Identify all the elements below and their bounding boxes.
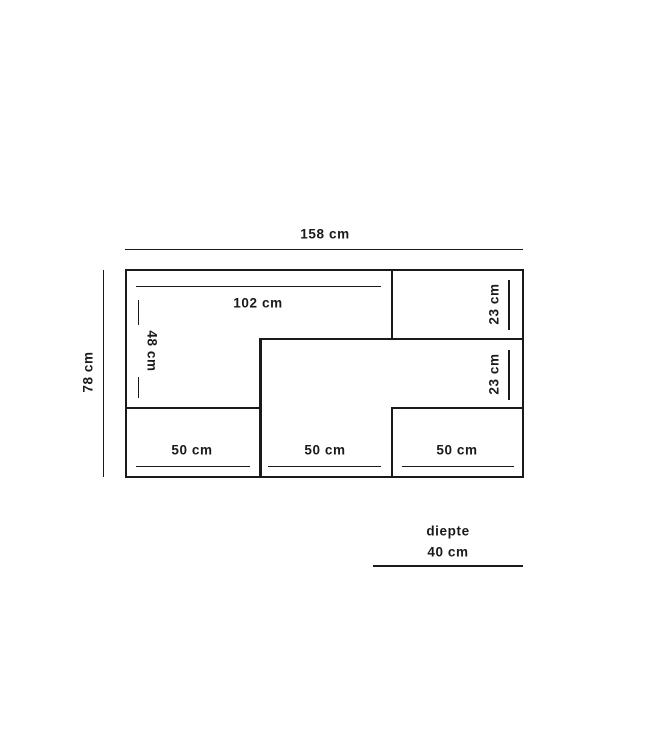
- height-48-label: 48 cm: [145, 330, 160, 371]
- overall-width-label: 158 cm: [300, 227, 349, 242]
- partition-bottom-left-horizontal: [125, 407, 261, 410]
- shelf-102-dim-line: [136, 286, 381, 288]
- middle-right-23-dim-line: [508, 350, 510, 400]
- overall-width-dim-line: [125, 249, 523, 251]
- height-48-dim-line-bottom: [138, 377, 140, 398]
- middle-right-23-label: 23 cm: [487, 353, 502, 394]
- bottom-middle-50-dim-line: [268, 466, 381, 468]
- partition-bottom-right-vertical: [391, 407, 394, 479]
- overall-height-dim-line: [103, 270, 105, 477]
- depth-value: 40 cm: [427, 545, 468, 560]
- dimension-diagram: 158 cm 78 cm 102 cm 48 cm 23 cm 23 cm 50…: [0, 0, 650, 750]
- bottom-left-50-dim-line: [136, 466, 250, 468]
- top-right-23-dim-line: [508, 280, 510, 330]
- depth-dim-line: [373, 565, 523, 567]
- depth-label: diepte: [426, 524, 469, 539]
- bottom-right-50-label: 50 cm: [436, 443, 477, 458]
- height-48-dim-line-top: [138, 300, 140, 325]
- partition-bottom-right-horizontal: [391, 407, 525, 410]
- partition-middle-horizontal: [259, 338, 524, 341]
- bottom-left-50-label: 50 cm: [171, 443, 212, 458]
- partition-top-right-vertical: [391, 269, 394, 339]
- overall-height-label: 78 cm: [81, 351, 96, 392]
- bottom-right-50-dim-line: [402, 466, 514, 468]
- top-right-23-label: 23 cm: [487, 283, 502, 324]
- bottom-middle-50-label: 50 cm: [304, 443, 345, 458]
- shelf-102-label: 102 cm: [233, 296, 282, 311]
